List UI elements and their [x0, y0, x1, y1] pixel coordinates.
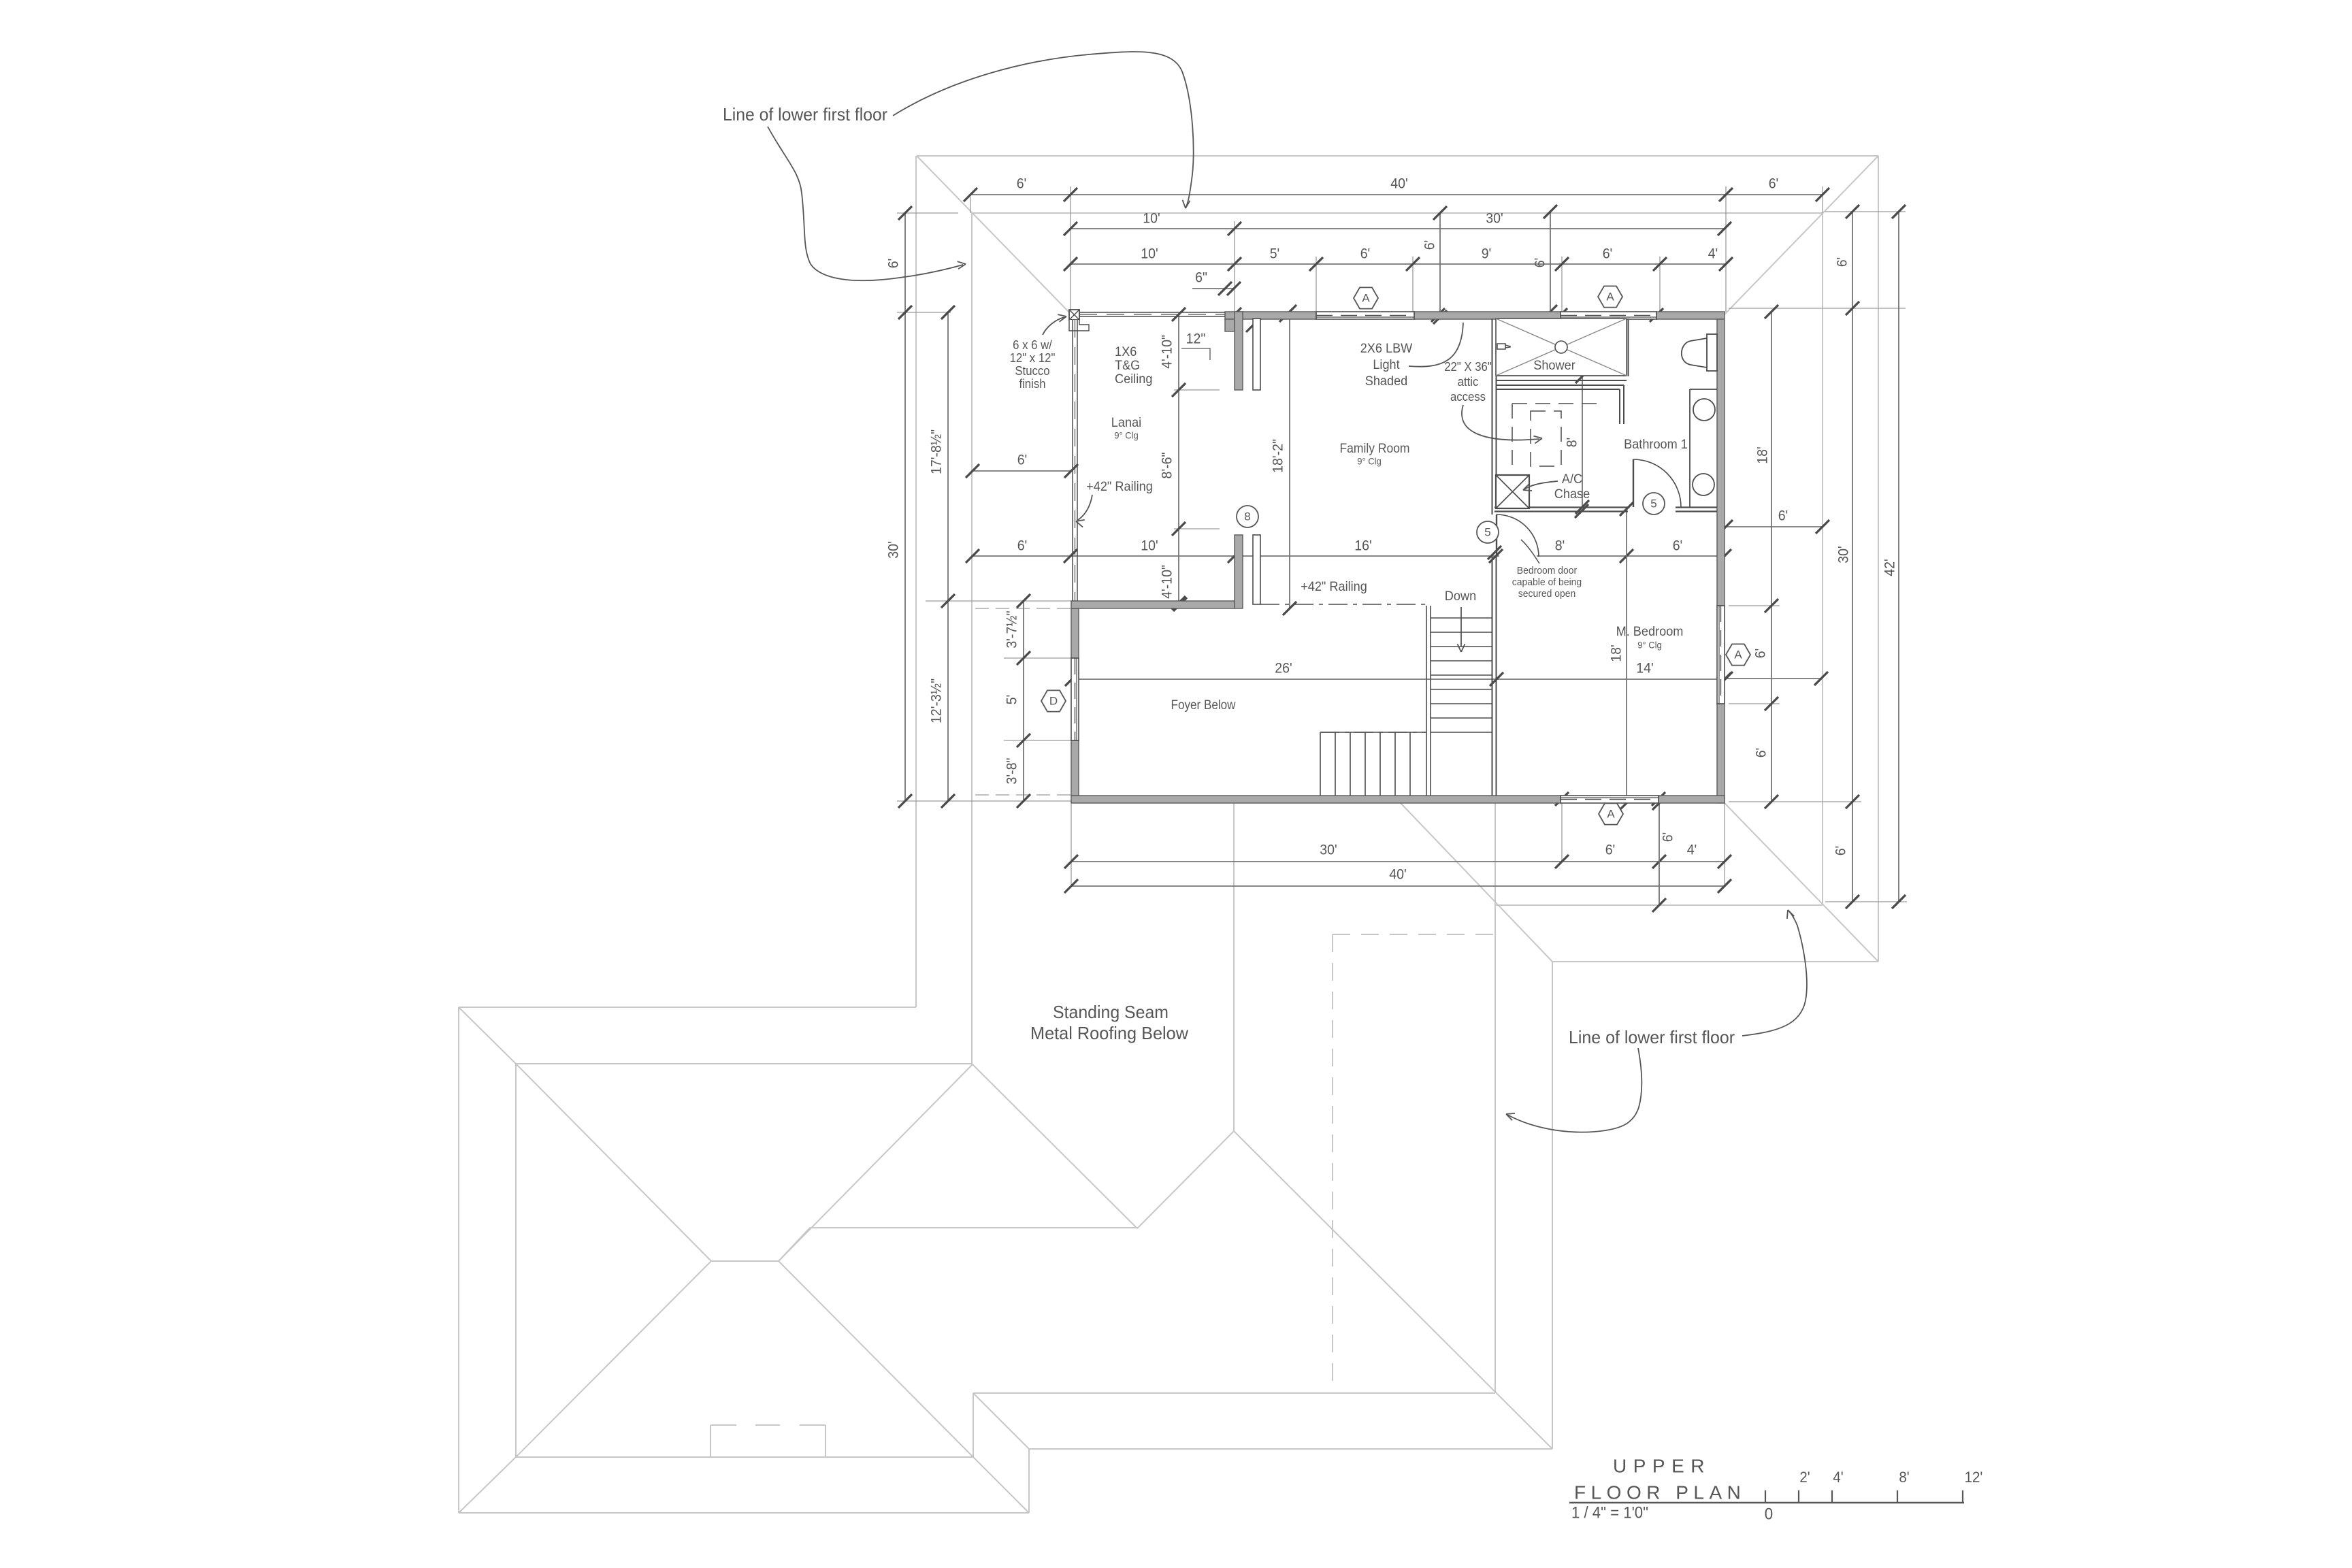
svg-text:secured open: secured open	[1518, 588, 1576, 600]
svg-text:6': 6'	[1533, 258, 1548, 268]
svg-text:30': 30'	[1486, 211, 1503, 227]
svg-text:40': 40'	[1389, 867, 1407, 883]
svg-text:10': 10'	[1141, 246, 1158, 262]
svg-text:18': 18'	[1609, 644, 1624, 662]
svg-text:access: access	[1450, 390, 1486, 404]
svg-text:10': 10'	[1143, 211, 1160, 227]
svg-text:6': 6'	[1661, 832, 1676, 843]
svg-text:0: 0	[1765, 1505, 1773, 1523]
svg-text:18': 18'	[1755, 446, 1771, 464]
svg-text:4': 4'	[1687, 843, 1697, 858]
svg-text:9° Clg: 9° Clg	[1357, 456, 1382, 467]
svg-text:6': 6'	[1017, 453, 1028, 468]
svg-text:26': 26'	[1275, 661, 1292, 676]
svg-text:5': 5'	[1004, 695, 1020, 705]
svg-text:6 x 6 w/: 6 x 6 w/	[1013, 338, 1052, 352]
svg-text:1X6: 1X6	[1115, 344, 1137, 359]
svg-text:Shower: Shower	[1533, 358, 1575, 373]
svg-text:30': 30'	[886, 541, 902, 559]
svg-text:capable of being: capable of being	[1512, 576, 1582, 588]
svg-text:T&G: T&G	[1115, 358, 1140, 373]
svg-text:Bedroom door: Bedroom door	[1517, 565, 1577, 576]
svg-text:42': 42'	[1882, 559, 1898, 576]
svg-text:1 / 4" = 1'0": 1 / 4" = 1'0"	[1571, 1503, 1648, 1522]
svg-text:4': 4'	[1708, 246, 1718, 262]
svg-text:Line of lower first floor: Line of lower first floor	[1569, 1027, 1735, 1047]
svg-text:UPPER: UPPER	[1613, 1455, 1711, 1476]
svg-text:14': 14'	[1636, 661, 1654, 676]
svg-text:6': 6'	[1769, 176, 1779, 192]
svg-text:6': 6'	[1422, 240, 1438, 250]
svg-text:attic: attic	[1458, 375, 1479, 389]
svg-text:2': 2'	[1799, 1469, 1810, 1486]
svg-text:2X6 LBW: 2X6 LBW	[1360, 341, 1413, 356]
svg-text:Down: Down	[1445, 589, 1476, 604]
svg-text:Light: Light	[1373, 357, 1400, 372]
svg-text:22" X 36": 22" X 36"	[1444, 360, 1492, 374]
svg-text:6': 6'	[1754, 748, 1769, 758]
svg-text:3'-7½": 3'-7½"	[1004, 610, 1020, 648]
svg-text:5: 5	[1484, 525, 1490, 538]
svg-text:30': 30'	[1320, 843, 1337, 858]
svg-text:9° Clg: 9° Clg	[1637, 640, 1662, 651]
svg-text:6': 6'	[1605, 843, 1616, 858]
svg-text:40': 40'	[1390, 176, 1408, 192]
svg-text:3'-8": 3'-8"	[1004, 758, 1020, 785]
svg-text:+42" Railing: +42" Railing	[1301, 579, 1367, 594]
svg-text:finish: finish	[1019, 377, 1045, 391]
svg-text:12": 12"	[1186, 331, 1206, 347]
svg-text:30': 30'	[1836, 546, 1852, 563]
svg-text:Standing Seam: Standing Seam	[1053, 1002, 1169, 1022]
svg-text:6": 6"	[1195, 270, 1207, 286]
svg-text:+42" Railing: +42" Railing	[1086, 479, 1153, 494]
svg-text:12'-3½": 12'-3½"	[929, 679, 945, 723]
svg-text:6': 6'	[1017, 538, 1028, 554]
svg-text:5': 5'	[1270, 246, 1280, 262]
svg-text:8'-6": 8'-6"	[1160, 453, 1175, 479]
svg-text:8': 8'	[1565, 438, 1580, 448]
svg-text:6': 6'	[1753, 649, 1769, 659]
svg-text:12': 12'	[1965, 1469, 1983, 1486]
svg-text:Ceiling: Ceiling	[1115, 372, 1152, 387]
svg-text:D: D	[1049, 694, 1058, 707]
svg-text:Stucco: Stucco	[1015, 364, 1049, 378]
svg-text:16': 16'	[1354, 538, 1372, 554]
svg-text:6': 6'	[1360, 246, 1371, 262]
svg-text:8': 8'	[1899, 1469, 1909, 1486]
svg-text:6': 6'	[1017, 176, 1027, 192]
svg-text:4': 4'	[1833, 1469, 1843, 1486]
svg-text:4'-10": 4'-10"	[1160, 335, 1175, 369]
svg-text:A: A	[1362, 291, 1370, 304]
svg-text:4'-10": 4'-10"	[1160, 565, 1175, 599]
svg-text:8: 8	[1244, 510, 1250, 523]
svg-text:9° Clg: 9° Clg	[1114, 430, 1139, 441]
svg-text:Metal Roofing Below: Metal Roofing Below	[1030, 1023, 1188, 1043]
svg-text:10': 10'	[1141, 538, 1158, 554]
svg-text:A: A	[1607, 807, 1615, 820]
svg-text:12" x 12": 12" x 12"	[1010, 351, 1056, 365]
svg-text:6': 6'	[1833, 846, 1849, 856]
svg-text:6': 6'	[1778, 508, 1788, 524]
svg-text:6': 6'	[1835, 257, 1850, 267]
svg-text:Line of lower first floor: Line of lower first floor	[723, 104, 887, 125]
svg-text:18'-2": 18'-2"	[1271, 439, 1286, 473]
svg-text:6': 6'	[1603, 246, 1613, 262]
svg-text:Chase: Chase	[1554, 487, 1590, 502]
svg-text:Lanai: Lanai	[1111, 415, 1141, 430]
svg-text:5: 5	[1650, 497, 1656, 510]
svg-text:FLOOR PLAN: FLOOR PLAN	[1574, 1482, 1746, 1503]
svg-text:M. Bedroom: M. Bedroom	[1616, 624, 1684, 639]
svg-text:Shaded: Shaded	[1365, 374, 1408, 389]
svg-text:8': 8'	[1555, 538, 1565, 554]
svg-text:Bathroom 1: Bathroom 1	[1624, 437, 1688, 452]
svg-text:A: A	[1734, 648, 1742, 661]
svg-text:Foyer Below: Foyer Below	[1171, 698, 1237, 713]
svg-text:A/C: A/C	[1562, 472, 1582, 487]
svg-text:17'-8½": 17'-8½"	[929, 429, 945, 474]
svg-text:A: A	[1606, 290, 1614, 303]
svg-text:6': 6'	[886, 259, 902, 269]
svg-text:9': 9'	[1482, 246, 1492, 262]
svg-text:6': 6'	[1673, 538, 1683, 554]
svg-text:Family Room: Family Room	[1340, 441, 1410, 456]
